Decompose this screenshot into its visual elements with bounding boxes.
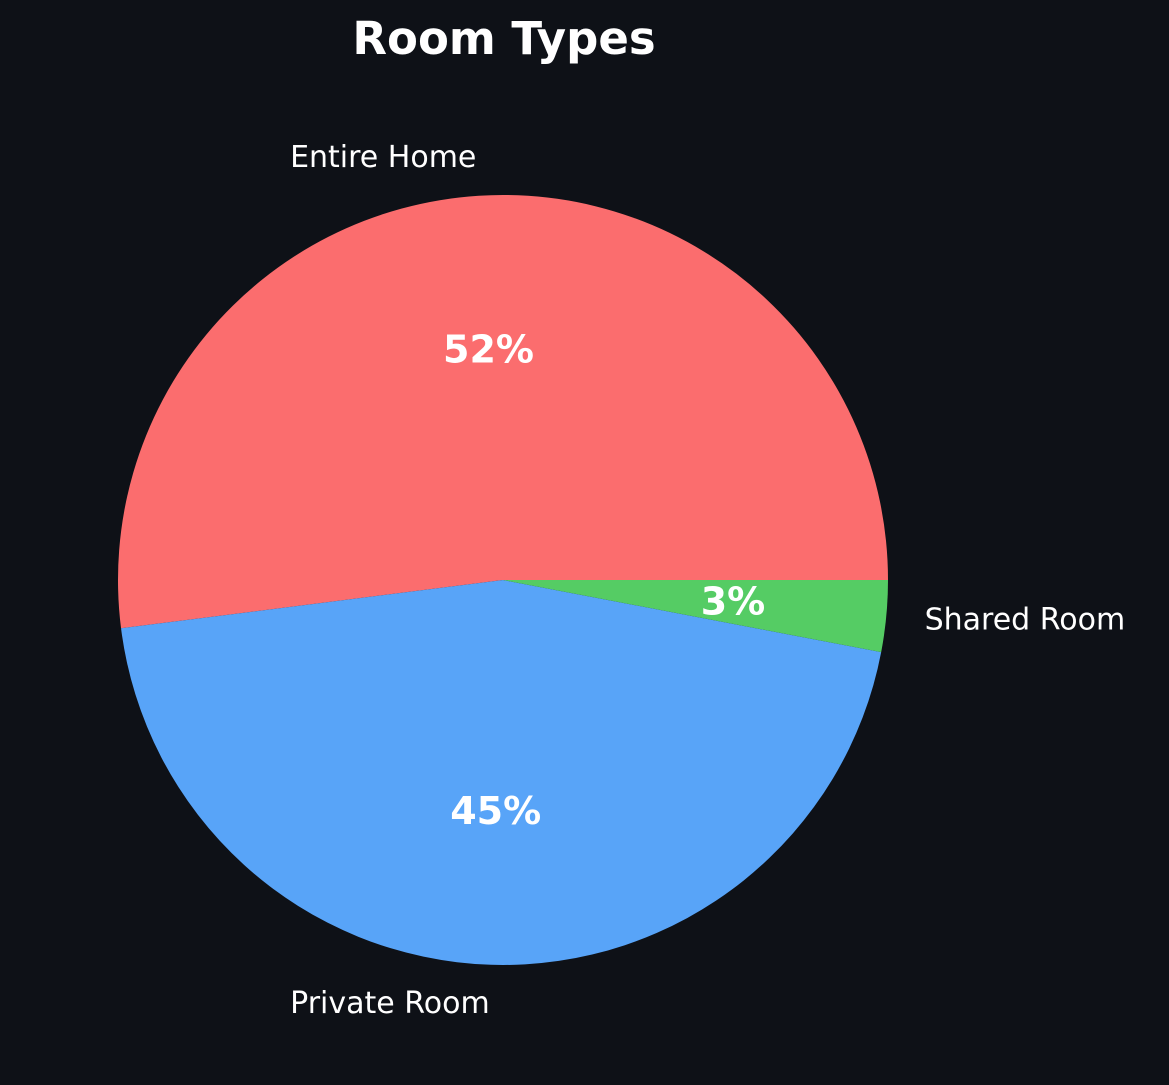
room-types-pie-figure: Room Types 52%Entire Home45%Private Room… (0, 0, 1169, 1085)
category-label-private-room: Private Room (290, 986, 490, 1021)
pie-slice-private-room (121, 580, 881, 965)
pct-label-entire-home: 52% (443, 328, 534, 372)
category-label-shared-room: Shared Room (925, 602, 1126, 637)
pct-label-private-room: 45% (450, 789, 541, 833)
category-label-entire-home: Entire Home (290, 140, 476, 175)
pie-chart: 52%Entire Home45%Private Room3%Shared Ro… (0, 0, 1169, 1085)
pie-slice-entire-home (118, 195, 888, 628)
pct-label-shared-room: 3% (701, 580, 766, 624)
